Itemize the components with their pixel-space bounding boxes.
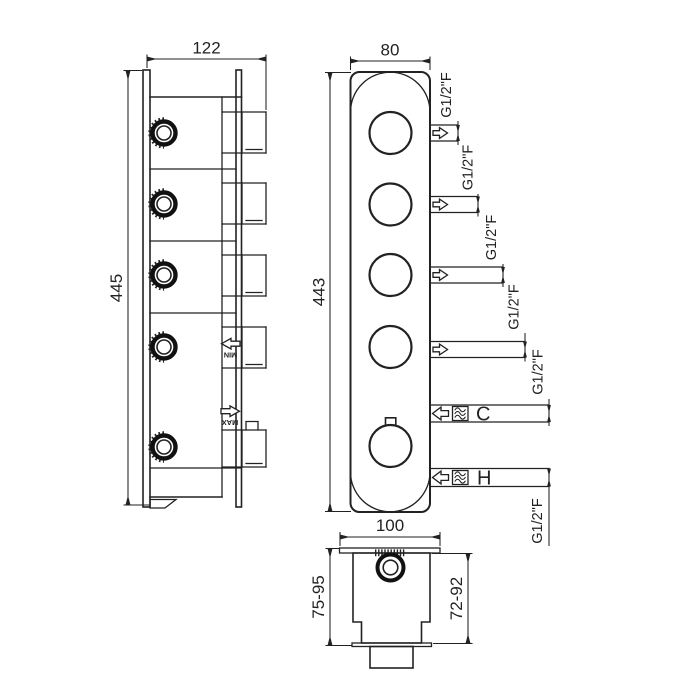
front-height-value: 443 (310, 278, 329, 306)
connection-block (222, 112, 266, 153)
cold-thread-label: G1/2"F (531, 349, 547, 395)
outlet-2-thread-label: G1/2"F (461, 145, 477, 191)
knob-thermostat (150, 433, 176, 461)
outlet-3-thread-label: G1/2"F (484, 215, 500, 261)
handle (370, 112, 412, 154)
bottom-view: 100 75-95 72-92 (309, 516, 473, 668)
connection-block (222, 255, 266, 296)
handle (370, 326, 412, 368)
outlet-port-3: G1/2"F (430, 215, 503, 287)
side-wall-plate (236, 70, 242, 507)
plate-bottom-arc (351, 472, 431, 512)
cold-inlet: C G1/2"F (430, 349, 549, 426)
max-label: MAX (222, 418, 238, 427)
technical-drawing-page: MIN MAX 122 445 (0, 0, 700, 700)
connection-block-thermostat (222, 422, 266, 468)
hot-thread-label: G1/2"F (530, 498, 546, 544)
handle (370, 254, 412, 296)
handle (370, 184, 412, 226)
bottom-knob (375, 553, 406, 581)
front-width-value: 80 (381, 41, 400, 60)
trim-plate-foot (150, 500, 176, 509)
outlet-port-1: G1/2"F (430, 72, 458, 145)
min-arrow-icon (222, 338, 241, 349)
knob (150, 261, 176, 289)
water-icon (453, 471, 469, 485)
outlet-port-4: G1/2"F (430, 284, 525, 361)
depth-left-value: 75-95 (309, 575, 328, 618)
hot-inlet: H G1/2"F (430, 468, 549, 547)
connection-block (222, 183, 266, 224)
shower-valve-drawing: MIN MAX 122 445 (0, 0, 700, 700)
knob (150, 333, 176, 361)
depth-left-dimension: 75-95 (309, 549, 352, 646)
cold-label: C (476, 404, 490, 426)
knob (150, 119, 176, 147)
plate-top-arc (351, 72, 431, 112)
flow-right-arrow-icon (433, 199, 448, 210)
knob (150, 190, 176, 218)
flow-left-arrow-icon (433, 471, 449, 484)
flow-left-arrow-icon (433, 407, 449, 420)
front-plate (351, 72, 431, 512)
front-view: G1/2"F G1/2"F G1/2"F (310, 41, 550, 547)
outlet-1-thread-label: G1/2"F (439, 72, 455, 118)
side-width-dimension: 122 (147, 39, 266, 111)
min-label: MIN (224, 351, 238, 360)
front-height-dimension: 443 (310, 73, 352, 512)
side-width-value: 122 (192, 39, 220, 58)
bottom-width-value: 100 (376, 516, 404, 535)
flow-right-arrow-icon (433, 344, 448, 355)
front-handles (370, 112, 412, 467)
bottom-connection-box (370, 647, 413, 669)
depth-right-value: 72-92 (447, 577, 466, 620)
hot-label: H (477, 468, 491, 490)
bottom-width-dimension: 100 (340, 516, 440, 546)
handle-thermostat (370, 425, 412, 467)
flow-right-arrow-icon (433, 270, 448, 281)
bottom-body (352, 553, 432, 668)
side-view: MIN MAX 122 445 (107, 39, 266, 509)
outlet-4-thread-label: G1/2"F (507, 284, 523, 330)
side-height-value: 445 (107, 274, 126, 302)
side-knobs (150, 119, 176, 461)
outlet-port-2: G1/2"F (430, 145, 478, 217)
depth-right-dimension: 72-92 (432, 554, 473, 644)
front-width-dimension: 80 (351, 41, 431, 71)
min-marking: MIN (222, 338, 241, 359)
flow-right-arrow-icon (433, 128, 448, 139)
water-icon (453, 407, 469, 421)
